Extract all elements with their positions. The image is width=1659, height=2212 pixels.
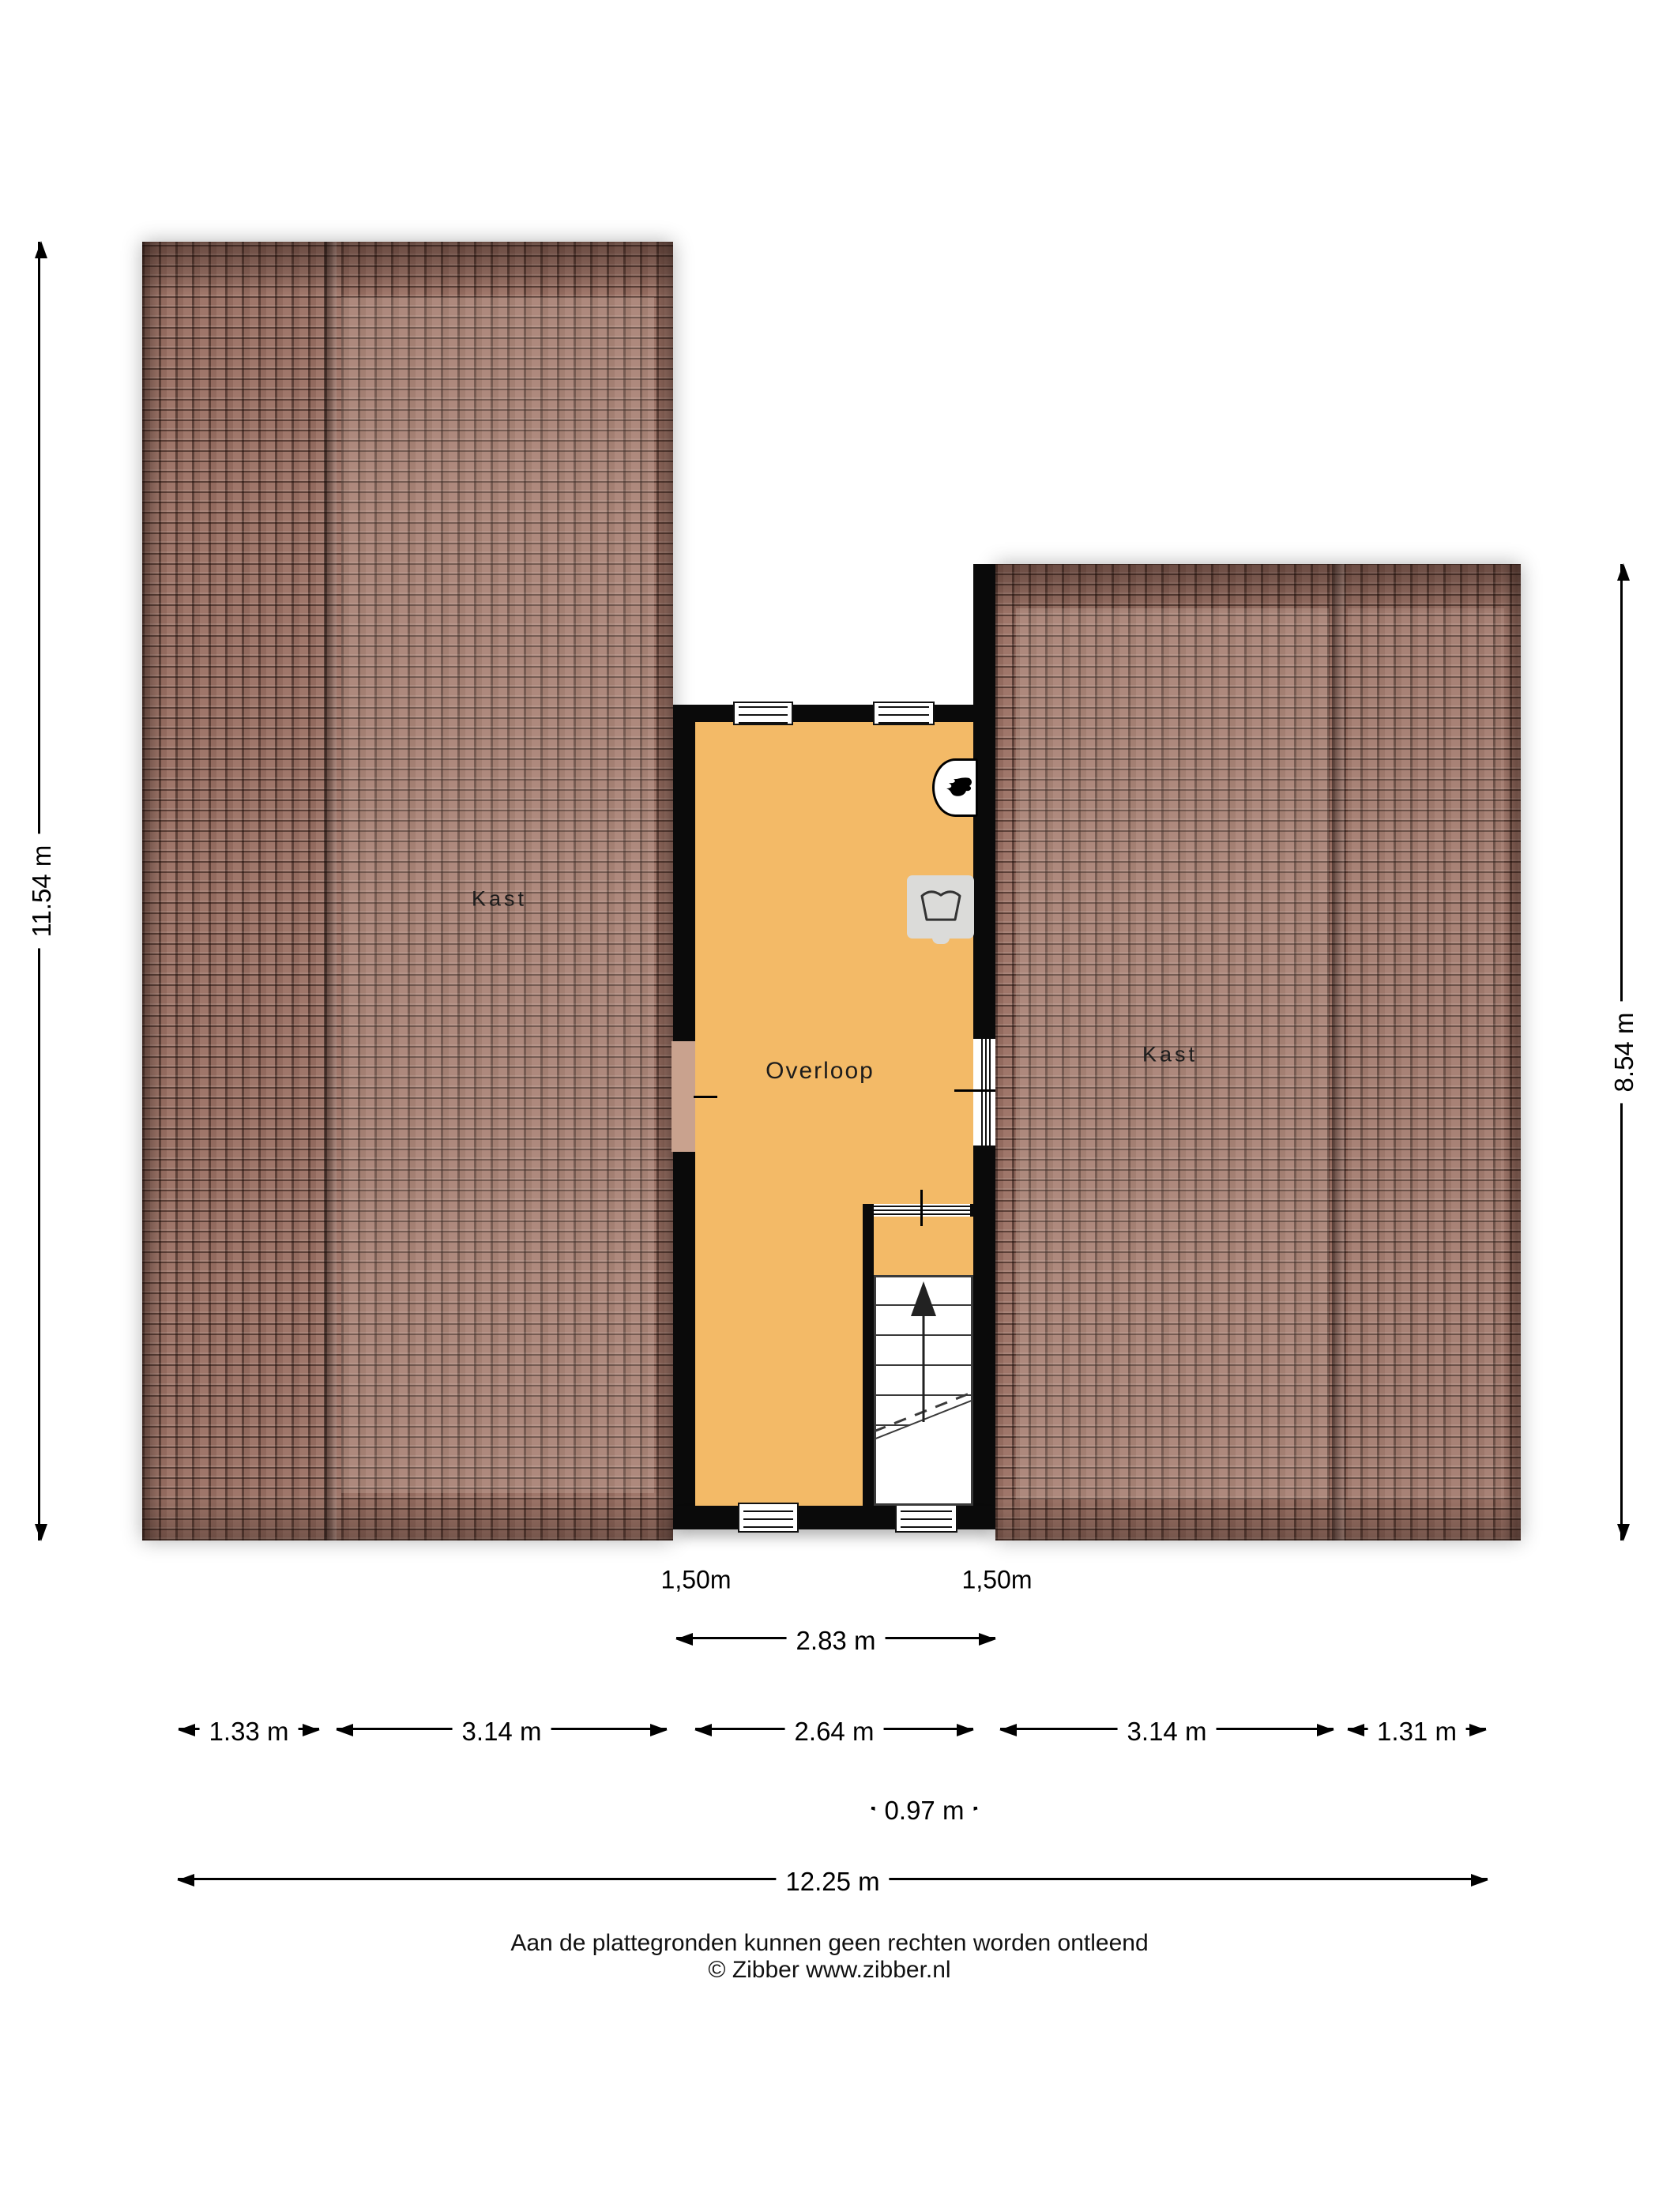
dimension-segment-3: 2.64 m <box>695 1728 973 1730</box>
roof-right-kast <box>995 564 1521 1540</box>
arrowhead-down-icon <box>35 1524 47 1541</box>
footer-disclaimer: Aan de plattegronden kunnen geen rechten… <box>0 1930 1659 1957</box>
stair-wall <box>863 1204 874 1506</box>
door-opening-left-kast <box>671 1041 695 1152</box>
dimension-overloop-width: 2.83 m <box>676 1637 995 1639</box>
window-top-right <box>873 702 935 725</box>
dimension-segment-2: 3.14 m <box>337 1728 667 1730</box>
roof-shading <box>995 564 1521 616</box>
dimension-label: 8.54 m <box>1609 1002 1639 1104</box>
arrowhead-right-icon <box>1471 1874 1488 1887</box>
height-label-right: 1,50m <box>962 1566 1033 1595</box>
window-glass <box>743 1510 793 1528</box>
laundry-appliance <box>907 875 974 939</box>
dimension-right-height: 8.54 m <box>1620 564 1623 1540</box>
dimension-stair-width: 0.97 m <box>871 1807 977 1809</box>
roof-shading <box>142 242 673 294</box>
wash-tub-icon <box>920 886 961 924</box>
door-tick-right <box>954 1089 995 1092</box>
arrowhead-up-icon <box>35 241 47 258</box>
door-tick-stair <box>920 1190 923 1226</box>
dimension-label: 2.83 m <box>787 1626 886 1656</box>
boiler-unit <box>932 758 978 817</box>
window-glass <box>901 1510 952 1528</box>
staircase <box>874 1275 973 1506</box>
dimension-label: 12.25 m <box>776 1867 889 1897</box>
roof-left-kast <box>142 242 673 1540</box>
room-label-overloop: Overloop <box>766 1058 875 1085</box>
dimension-total-width: 12.25 m <box>178 1878 1488 1880</box>
dimension-label: 3.14 m <box>1118 1717 1217 1747</box>
roof-ridge-line <box>324 242 337 1540</box>
window-top-left <box>733 702 793 725</box>
arrowhead-left-icon <box>675 1633 693 1646</box>
arrowhead-down-icon <box>1617 1524 1630 1541</box>
arrowhead-right-icon <box>1317 1724 1334 1736</box>
room-label-kast-right: Kast <box>1142 1043 1198 1067</box>
door-right-kast <box>973 1039 995 1145</box>
dimension-label: 1.31 m <box>1367 1717 1466 1747</box>
arrowhead-left-icon <box>336 1724 353 1736</box>
roof-shading <box>995 1495 1521 1540</box>
dimension-segment-1: 1.33 m <box>179 1728 319 1730</box>
flame-icon <box>942 772 974 803</box>
roof-shading <box>142 242 163 1540</box>
dimension-label: 0.97 m <box>875 1796 974 1826</box>
roof-highlight <box>1348 608 1504 1499</box>
arrowhead-right-icon <box>303 1724 320 1736</box>
arrowhead-left-icon <box>178 1724 195 1736</box>
window-bottom-left <box>738 1503 799 1533</box>
dimension-label: 2.64 m <box>785 1717 884 1747</box>
arrowhead-right-icon <box>979 1633 996 1646</box>
arrowhead-right-icon <box>957 1724 974 1736</box>
window-glass <box>739 706 788 724</box>
roof-ridge-line <box>1332 564 1345 1540</box>
dimension-segment-4: 3.14 m <box>1000 1728 1334 1730</box>
dimension-label: 3.14 m <box>453 1717 551 1747</box>
arrowhead-left-icon <box>999 1724 1017 1736</box>
arrowhead-left-icon <box>1347 1724 1364 1736</box>
window-glass <box>878 706 929 724</box>
roof-shading <box>142 1495 673 1540</box>
wall-top <box>673 705 995 722</box>
arrowhead-left-icon <box>177 1874 194 1887</box>
arrowhead-right-icon <box>1469 1724 1487 1736</box>
wall-left-upper <box>673 705 695 1041</box>
dimension-segment-5: 1.31 m <box>1348 1728 1486 1730</box>
dimension-label: 1.33 m <box>200 1717 299 1747</box>
roof-shading <box>654 242 673 1540</box>
footer-copyright: © Zibber www.zibber.nl <box>0 1957 1659 1984</box>
height-label-left: 1,50m <box>661 1566 732 1595</box>
room-label-kast-left: Kast <box>472 887 527 912</box>
wall-left-lower <box>673 1152 695 1529</box>
floorplan-page: Kast Overloop Kast 1,50m 1,50m 11.54 m 8… <box>0 0 1659 2212</box>
roof-shading <box>1502 564 1521 1540</box>
arrowhead-up-icon <box>1617 563 1630 581</box>
arrowhead-right-icon <box>650 1724 668 1736</box>
stair-door-stub <box>970 1204 973 1217</box>
arrowhead-left-icon <box>694 1724 712 1736</box>
window-bottom-right <box>895 1503 957 1533</box>
dimension-label: 11.54 m <box>27 834 57 949</box>
door-tick-left <box>694 1096 717 1098</box>
wall-right-lower <box>973 1145 995 1529</box>
dimension-left-height: 11.54 m <box>38 242 40 1540</box>
door-leaf-lines <box>981 1039 993 1145</box>
